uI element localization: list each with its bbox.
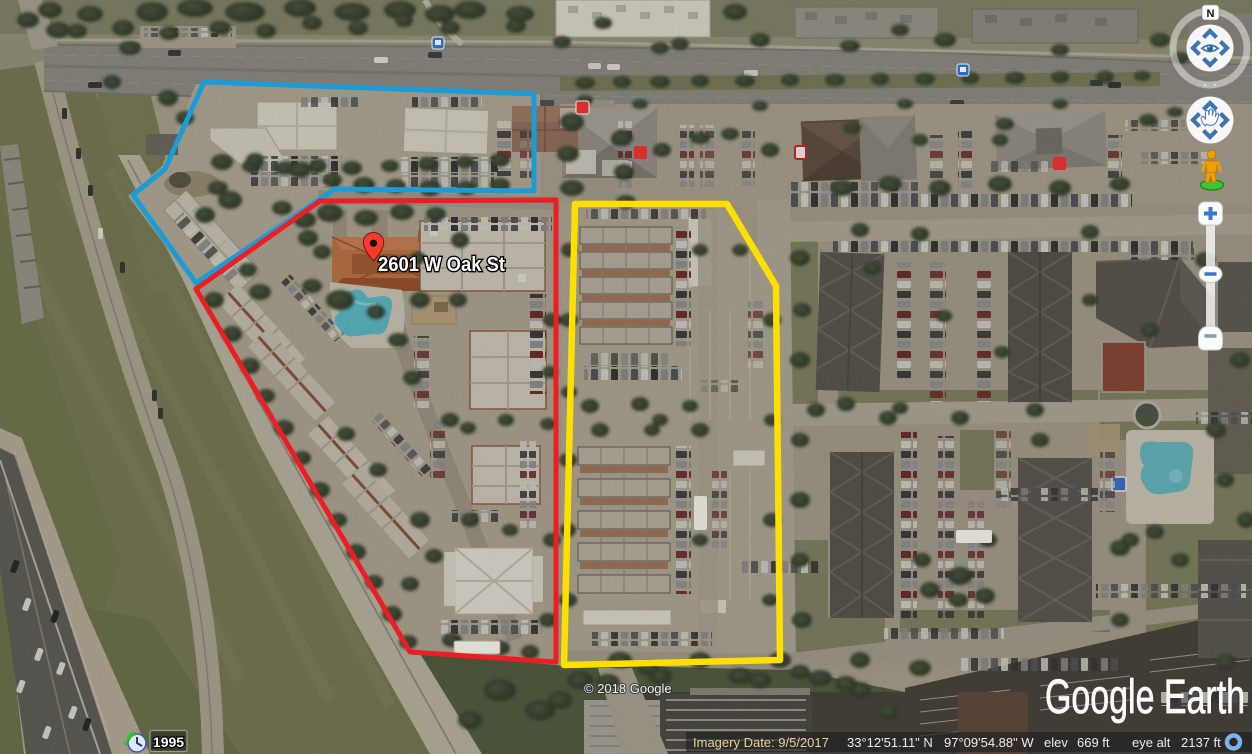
svg-text:© 2018 Google: © 2018 Google	[584, 681, 672, 696]
svg-text:Google Earth: Google Earth	[1045, 671, 1245, 724]
svg-text:1995: 1995	[153, 734, 184, 750]
svg-text:N: N	[1207, 8, 1215, 20]
svg-text:elev: elev	[1044, 735, 1068, 750]
svg-text:33°12'51.11" N: 33°12'51.11" N	[847, 735, 933, 750]
svg-text:2601 W Oak St: 2601 W Oak St	[378, 254, 505, 276]
svg-text:Imagery Date: 9/5/2017: Imagery Date: 9/5/2017	[693, 735, 829, 750]
svg-text:eye alt: eye alt	[1132, 735, 1171, 750]
svg-text:2137 ft: 2137 ft	[1181, 735, 1221, 750]
svg-text:669 ft: 669 ft	[1077, 735, 1110, 750]
svg-text:97°09'54.88" W: 97°09'54.88" W	[944, 735, 1034, 750]
